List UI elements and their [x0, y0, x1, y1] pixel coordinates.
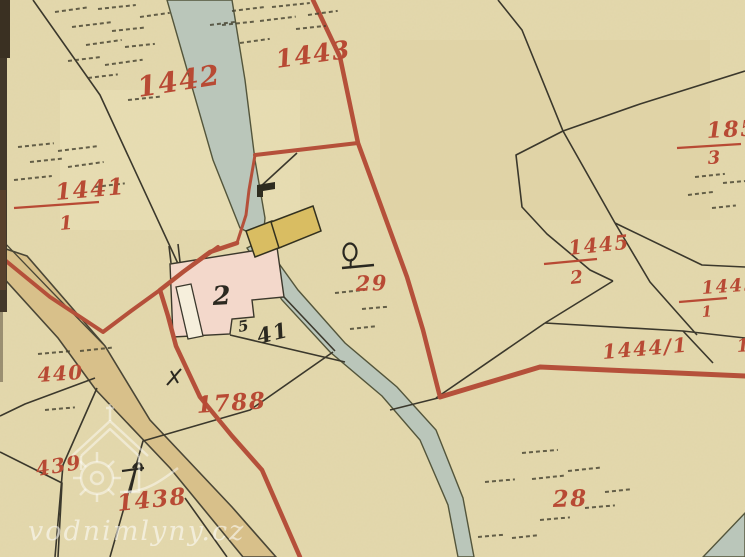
house-number-2-label: 2 — [211, 281, 233, 312]
parcel-1445-2-den-label: 2 — [568, 267, 585, 289]
parcel-1788-label: 1788 — [196, 387, 268, 419]
parcel-29-label: 29 — [354, 270, 388, 296]
parcel-28-label: 28 — [551, 485, 588, 513]
parcel-185-den-label: 3 — [707, 147, 722, 169]
watermark-text: vodnimlyny.cz — [28, 516, 245, 547]
parcel-440-label: 440 — [37, 360, 85, 387]
parcel-1445-1-num-label: 1445 — [701, 274, 745, 299]
parcel-185-num-label: 185 — [706, 115, 745, 144]
parcel-14-clipped-label: 14 — [736, 334, 745, 357]
parcel-1441-den-label: 1 — [59, 212, 76, 235]
cadastral-map: 1442144314411185314452144511444/11429284… — [0, 0, 745, 557]
cadastral-map-viewport: 1442144314411185314452144511444/11429284… — [0, 0, 745, 557]
parcel-1445-1-den-label: 1 — [701, 302, 714, 321]
